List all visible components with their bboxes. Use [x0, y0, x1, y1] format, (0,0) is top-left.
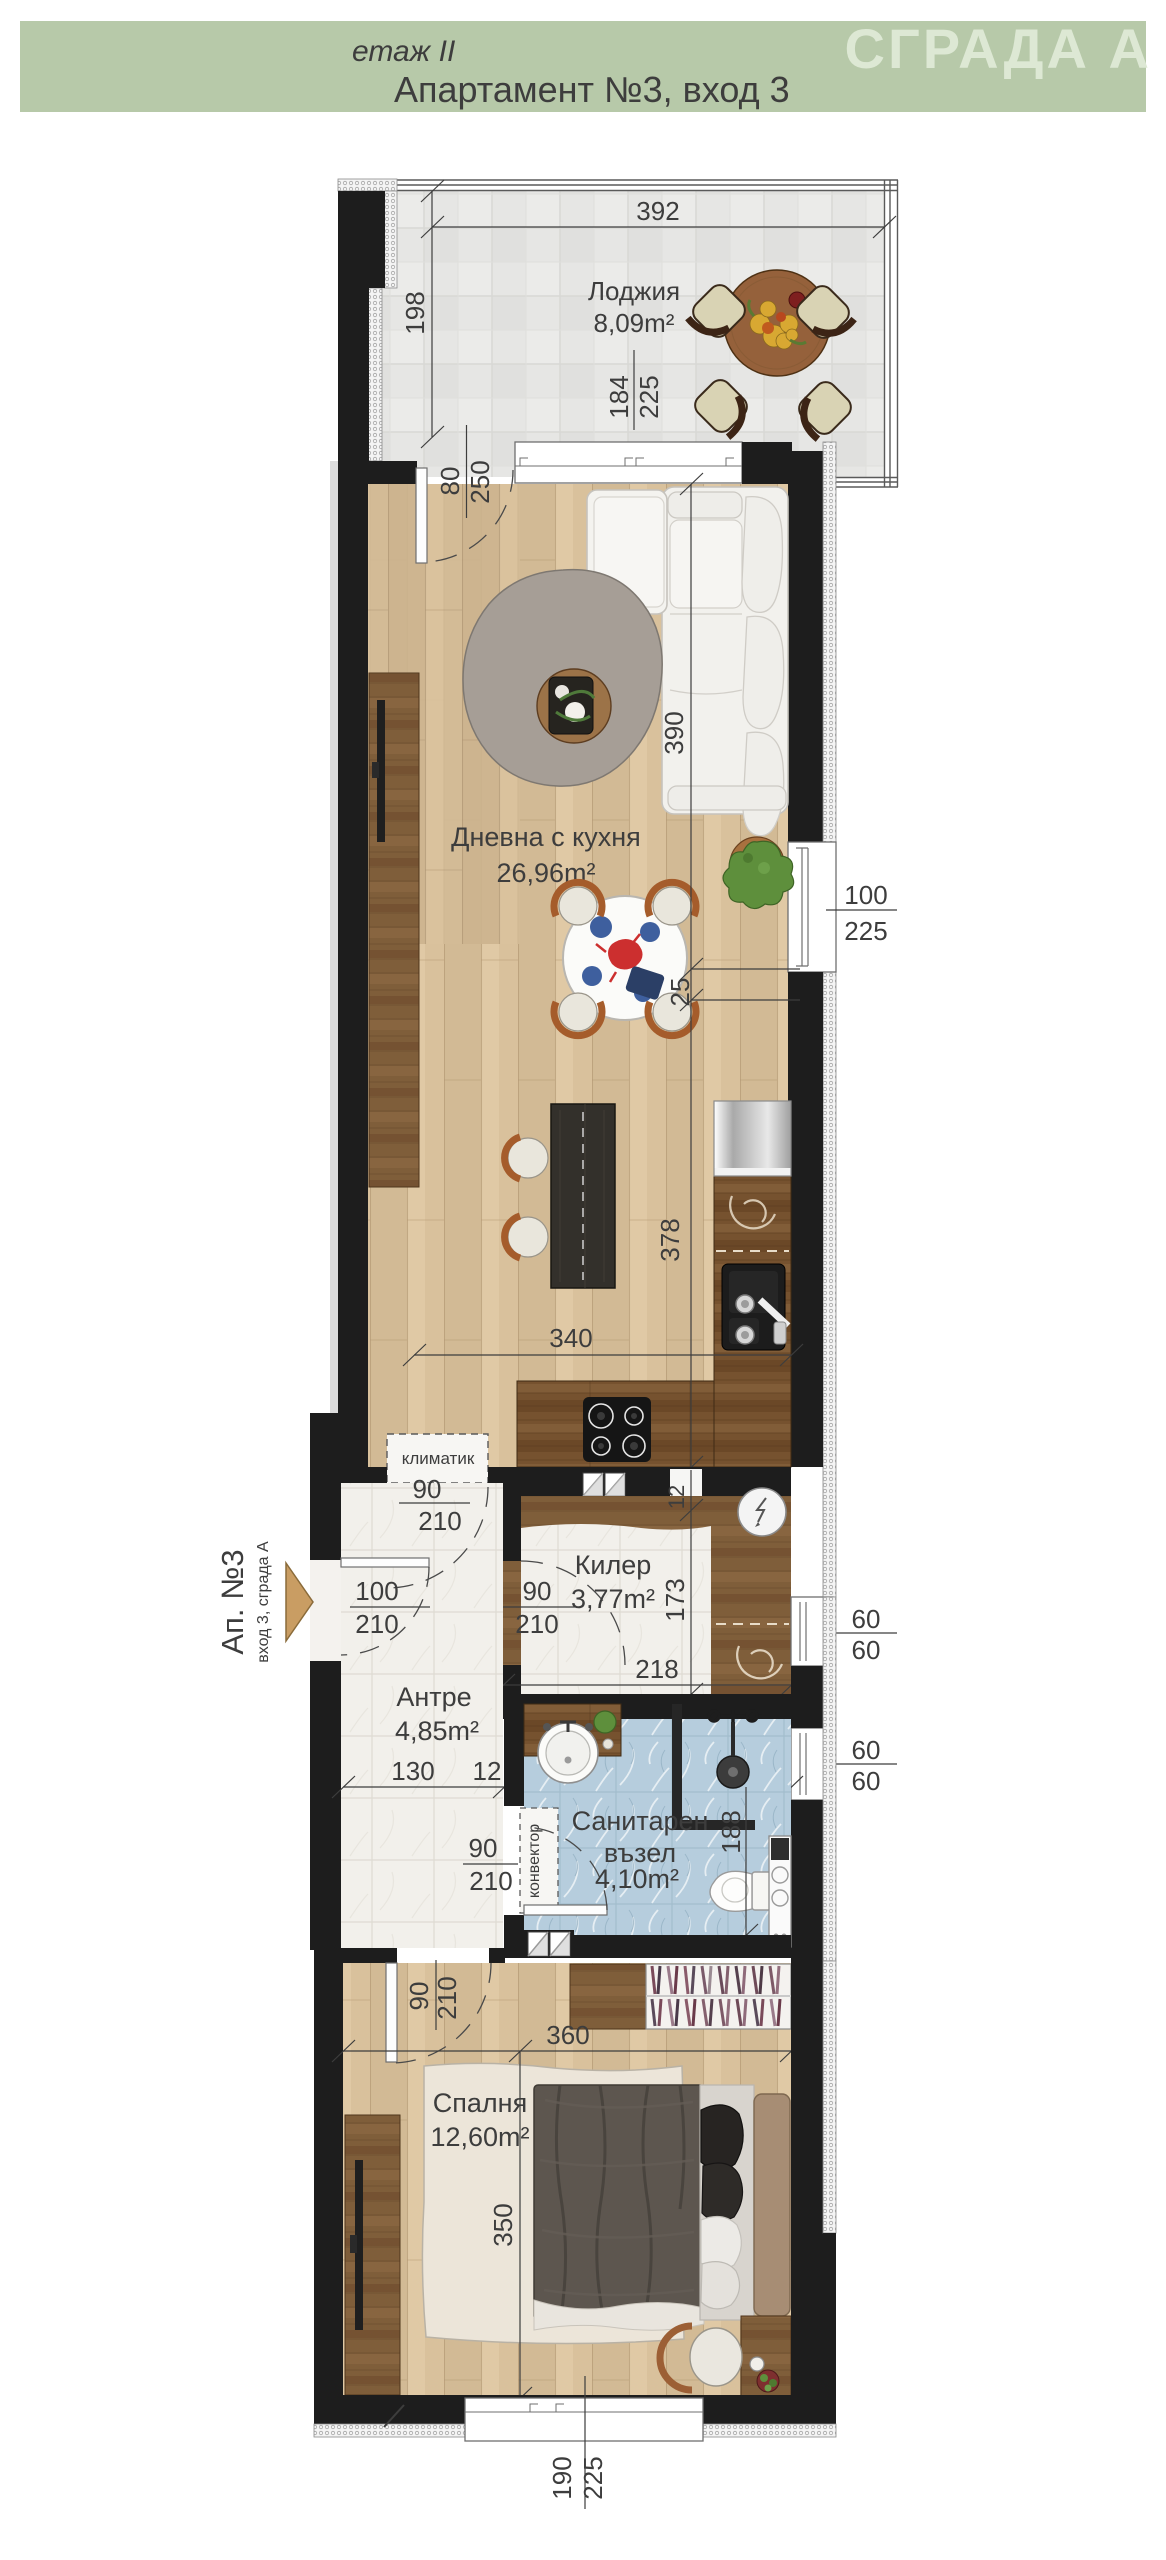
svg-text:90: 90 [469, 1833, 498, 1863]
svg-text:60: 60 [852, 1635, 881, 1665]
svg-text:210: 210 [515, 1609, 558, 1639]
svg-text:80: 80 [435, 467, 465, 496]
svg-text:25: 25 [665, 978, 695, 1007]
svg-text:4,10m²: 4,10m² [595, 1864, 679, 1894]
svg-text:130: 130 [391, 1756, 434, 1786]
svg-text:вход 3, сграда А: вход 3, сграда А [255, 1541, 272, 1663]
svg-text:Лоджия: Лоджия [588, 276, 680, 306]
svg-text:90: 90 [523, 1576, 552, 1606]
svg-text:392: 392 [636, 196, 679, 226]
svg-text:210: 210 [432, 1976, 462, 2019]
svg-text:СГРАДА А: СГРАДА А [845, 17, 1152, 80]
svg-text:350: 350 [488, 2203, 518, 2246]
svg-text:225: 225 [844, 916, 887, 946]
svg-text:340: 340 [549, 1323, 592, 1353]
svg-text:Антре: Антре [396, 1682, 471, 1712]
svg-text:8,09m²: 8,09m² [594, 308, 675, 338]
svg-text:210: 210 [355, 1609, 398, 1639]
svg-text:Апартамент №3, вход 3: Апартамент №3, вход 3 [394, 69, 790, 110]
svg-text:378: 378 [655, 1218, 685, 1261]
svg-text:100: 100 [844, 880, 887, 910]
svg-text:Спалня: Спалня [433, 2088, 527, 2118]
svg-text:225: 225 [634, 375, 664, 418]
svg-text:190: 190 [547, 2456, 577, 2499]
svg-text:250: 250 [465, 460, 495, 503]
svg-text:188: 188 [716, 1810, 746, 1853]
svg-text:90: 90 [413, 1474, 442, 1504]
svg-text:360: 360 [546, 2020, 589, 2050]
svg-text:климатик: климатик [402, 1449, 475, 1468]
svg-text:12,60m²: 12,60m² [430, 2122, 529, 2152]
svg-text:60: 60 [852, 1735, 881, 1765]
svg-text:225: 225 [578, 2456, 608, 2499]
svg-text:210: 210 [469, 1866, 512, 1896]
svg-text:етаж II: етаж II [352, 35, 455, 68]
svg-text:390: 390 [659, 711, 689, 754]
svg-text:90: 90 [404, 1982, 434, 2011]
svg-text:210: 210 [418, 1506, 461, 1536]
svg-text:100: 100 [355, 1576, 398, 1606]
svg-text:Дневна с кухня: Дневна с кухня [451, 822, 641, 852]
svg-text:60: 60 [852, 1604, 881, 1634]
svg-text:Килер: Килер [575, 1550, 652, 1580]
svg-text:218: 218 [635, 1654, 678, 1684]
svg-text:198: 198 [400, 291, 430, 334]
svg-text:Ап. №3: Ап. №3 [215, 1549, 250, 1654]
svg-text:Санитарен: Санитарен [572, 1806, 709, 1836]
svg-text:12: 12 [473, 1756, 502, 1786]
svg-text:184: 184 [604, 375, 634, 418]
svg-text:конвектор: конвектор [526, 1824, 543, 1898]
svg-text:173: 173 [660, 1578, 690, 1621]
svg-text:3,77m²: 3,77m² [571, 1584, 655, 1614]
svg-text:12: 12 [664, 1485, 689, 1509]
svg-text:4,85m²: 4,85m² [395, 1716, 479, 1746]
svg-text:60: 60 [852, 1766, 881, 1796]
